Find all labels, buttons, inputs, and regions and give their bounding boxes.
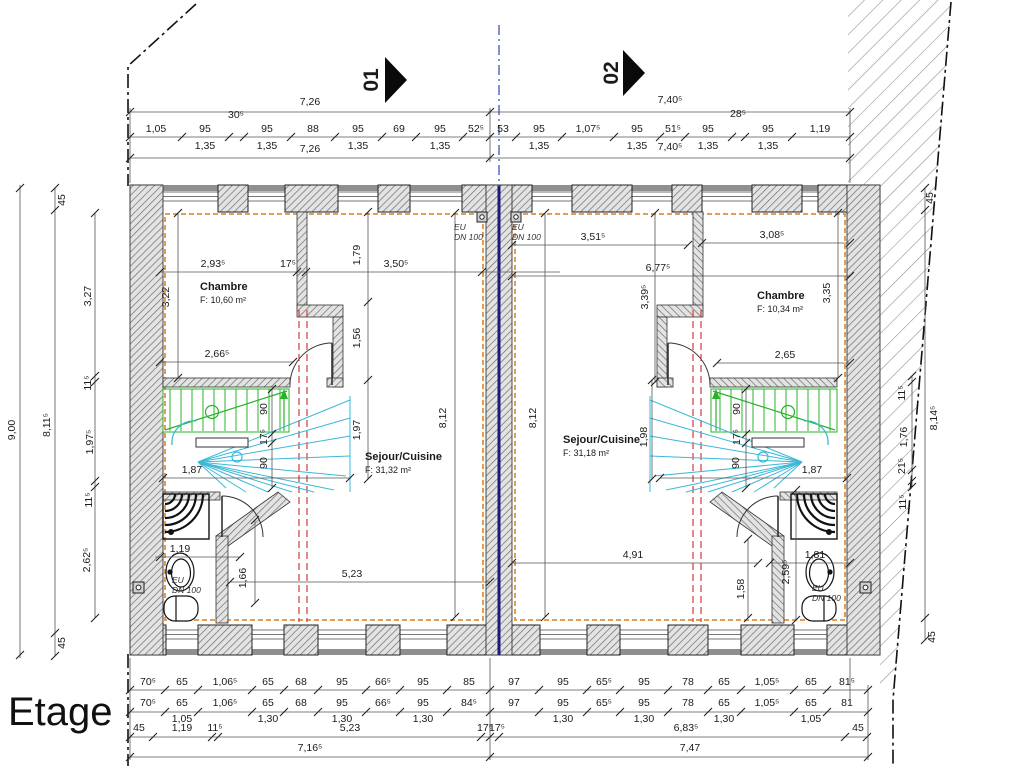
dim-label: 7,26 xyxy=(300,143,320,155)
dim-label: 7,16⁵ xyxy=(298,742,323,754)
dim-label: 1,97⁵ xyxy=(84,430,96,455)
dim-label: 1,56 xyxy=(351,328,363,348)
unit1-arrow-icon xyxy=(385,57,407,103)
dim-label: 3,39⁵ xyxy=(639,285,651,310)
plumbing-label: EU xyxy=(812,583,824,593)
unit2-arrow-icon xyxy=(623,50,645,96)
dim-label: 88 xyxy=(307,123,319,135)
dim-label: 3,27 xyxy=(82,286,94,306)
dim-label: 3,35 xyxy=(821,283,833,303)
dim-label: 1,06⁵ xyxy=(213,697,238,709)
dim-label: 17⁵ xyxy=(731,429,743,445)
wc xyxy=(164,596,198,621)
dim-label: 95 xyxy=(557,676,569,688)
room-name-sejour2: Sejour/Cuisine xyxy=(563,434,640,446)
dim-label: 11⁵ xyxy=(207,722,222,734)
dim-label: 1,79 xyxy=(351,245,363,265)
page-title: Etage xyxy=(8,690,113,735)
dim-label: 11⁵ xyxy=(896,385,908,400)
dim-label: 2,66⁵ xyxy=(205,348,230,360)
dim-label: 95 xyxy=(638,697,650,709)
dim-label: 85 xyxy=(463,676,475,688)
dim-label: 68 xyxy=(295,676,307,688)
dim-label: 11⁵ xyxy=(83,492,95,507)
dim-label: 95 xyxy=(199,123,211,135)
dim-label: 95 xyxy=(638,676,650,688)
plumbing-label: DN 100 xyxy=(512,232,541,242)
dim-label: 2,93⁵ xyxy=(201,258,226,270)
dim-label: 2,65 xyxy=(775,349,795,361)
plumbing-label: EU xyxy=(512,222,524,232)
dim-label: 1,30 xyxy=(258,713,278,725)
dim-label: 1,05 xyxy=(146,123,166,135)
dim-label: 1,30 xyxy=(634,713,654,725)
plumbing-label: DN 100 xyxy=(172,585,201,595)
dim-label: 53 xyxy=(497,123,509,135)
dim-label: 2,62⁵ xyxy=(81,548,93,573)
dim-label: 78 xyxy=(682,676,694,688)
dim-label: 81 xyxy=(841,697,853,709)
floorplan-canvas xyxy=(0,0,1024,768)
dim-label: 68 xyxy=(295,697,307,709)
dim-label: 1,66 xyxy=(237,568,249,588)
dim-label: 1,58 xyxy=(735,579,747,599)
unit1-marker: 01 xyxy=(360,68,384,91)
dim-label: 1,30 xyxy=(413,713,433,725)
dim-label: 66⁵ xyxy=(375,676,391,688)
dim-label: 45 xyxy=(926,631,938,643)
plumbing-label: EU xyxy=(454,222,466,232)
dim-label: 95 xyxy=(336,676,348,688)
dim-label: 95 xyxy=(261,123,273,135)
dim-label: 8,14⁵ xyxy=(928,406,940,431)
dim-label: 7,40⁵ xyxy=(658,141,683,153)
dim-label: 95 xyxy=(762,123,774,135)
dim-label: 3,08⁵ xyxy=(760,229,785,241)
dim-label: 45 xyxy=(924,192,936,204)
dim-label: 95 xyxy=(352,123,364,135)
dim-label: 7,26 xyxy=(300,96,320,108)
plumbing-label: DN 100 xyxy=(812,593,841,603)
dim-label: 6,77⁵ xyxy=(646,262,671,274)
dim-label: 4,91 xyxy=(623,549,643,561)
dim-label: 1,30 xyxy=(714,713,734,725)
dim-label: 11⁵ xyxy=(897,494,909,509)
dim-label: 17⁵ xyxy=(280,258,296,270)
room-name-chambre2: Chambre xyxy=(757,290,805,302)
dim-label: 9,00 xyxy=(6,420,18,440)
dim-label: 5,23 xyxy=(342,568,362,580)
dim-label: 97 xyxy=(508,697,520,709)
plumbing-label: DN 100 xyxy=(454,232,483,242)
dim-label: 69 xyxy=(393,123,405,135)
plumbing-label: EU xyxy=(172,575,184,585)
room-name-chambre1: Chambre xyxy=(200,281,248,293)
dim-label: 45 xyxy=(56,194,68,206)
dim-label: 65 xyxy=(718,676,730,688)
dim-label: 45 xyxy=(56,637,68,649)
dim-label: 51⁵ xyxy=(665,123,681,135)
dim-label: 6,83⁵ xyxy=(674,722,699,734)
dim-label: 65 xyxy=(805,676,817,688)
dim-label: 21⁵ xyxy=(896,458,908,474)
dim-label: 7,47 xyxy=(680,742,700,754)
dim-label: 1,35 xyxy=(430,140,450,152)
dim-label: 3,22 xyxy=(160,287,172,307)
dim-label: 1,05⁵ xyxy=(755,676,780,688)
dim-label: 90 xyxy=(730,457,742,469)
dim-label: 1,30 xyxy=(553,713,573,725)
dim-label: 1,87 xyxy=(182,464,202,476)
dim-label: 78 xyxy=(682,697,694,709)
floorplan-page: Etage 01 02 7,26 7,40⁵ 7,26 7,40⁵ 1,05 9… xyxy=(0,0,1024,768)
dim-label: 11⁵ xyxy=(82,375,94,390)
dim-label: 95 xyxy=(557,697,569,709)
dim-label: 97 xyxy=(508,676,520,688)
dim-label: 90 xyxy=(258,457,270,469)
dim-label: 7,40⁵ xyxy=(658,94,683,106)
dim-label: 65⁵ xyxy=(596,676,612,688)
dim-label: 3,50⁵ xyxy=(384,258,409,270)
dim-label: 65⁵ xyxy=(596,697,612,709)
dim-label: 95 xyxy=(533,123,545,135)
dim-label: 2,59⁵ xyxy=(780,560,792,585)
dim-label: 65 xyxy=(262,676,274,688)
unit2-marker: 02 xyxy=(600,61,624,84)
dim-label: 3,51⁵ xyxy=(581,231,606,243)
dim-label: 1,35 xyxy=(627,140,647,152)
dim-label: 1,81 xyxy=(805,549,825,561)
dim-label: 95 xyxy=(631,123,643,135)
room-name-sejour1: Sejour/Cuisine xyxy=(365,451,442,463)
dim-label: 1,35 xyxy=(195,140,215,152)
dim-label: 1,35 xyxy=(758,140,778,152)
dim-label: 1,97 xyxy=(351,420,363,440)
dim-label: 1,05⁵ xyxy=(755,697,780,709)
dim-label: 45 xyxy=(133,722,145,734)
dim-label: 95 xyxy=(434,123,446,135)
dim-label: 90 xyxy=(731,403,743,415)
dim-label: 1,35 xyxy=(529,140,549,152)
dim-label: 65 xyxy=(176,697,188,709)
dim-label: 95 xyxy=(336,697,348,709)
room-area-sejour1: F: 31,32 m² xyxy=(365,465,411,475)
dim-label: 1,87 xyxy=(802,464,822,476)
dim-label: 8,12 xyxy=(527,408,539,428)
dim-label: 70⁵ xyxy=(140,676,156,688)
dim-label: 66⁵ xyxy=(375,697,391,709)
dim-label: 1,35 xyxy=(348,140,368,152)
room-area-chambre1: F: 10,60 m² xyxy=(200,295,246,305)
dim-label: 1,35 xyxy=(257,140,277,152)
dim-label: 17⁵ xyxy=(258,429,270,445)
room-area-chambre2: F: 10,34 m² xyxy=(757,304,803,314)
dim-label: 70⁵ xyxy=(140,697,156,709)
dim-label: 8,12 xyxy=(437,408,449,428)
dim-label: 52⁵ xyxy=(468,123,484,135)
dim-label: 17⁵ xyxy=(489,722,505,734)
dim-label: 65 xyxy=(262,697,274,709)
dim-label: 65 xyxy=(176,676,188,688)
dim-label: 5,23 xyxy=(340,722,360,734)
dim-label: 1,05 xyxy=(801,713,821,725)
dim-label: 45 xyxy=(852,722,864,734)
dim-label: 90 xyxy=(258,403,270,415)
dim-label: 84⁵ xyxy=(461,697,477,709)
dim-label: 1,98 xyxy=(638,427,650,447)
dim-label: 1,76 xyxy=(898,427,910,447)
dim-label: 65 xyxy=(805,697,817,709)
dim-label: 95 xyxy=(702,123,714,135)
dim-label: 1,07⁵ xyxy=(576,123,601,135)
dim-label: 1,19 xyxy=(170,543,190,555)
stair-landing xyxy=(196,438,248,447)
dim-label: 30⁵ xyxy=(228,109,244,121)
room-area-sejour2: F: 31,18 m² xyxy=(563,448,609,458)
dim-label: 1,19 xyxy=(810,123,830,135)
dim-label: 1,35 xyxy=(698,140,718,152)
dim-label: 95 xyxy=(417,676,429,688)
dim-label: 8,11⁵ xyxy=(41,413,53,437)
dim-label: 1,06⁵ xyxy=(213,676,238,688)
dim-label: 95 xyxy=(417,697,429,709)
dim-label: 28⁵ xyxy=(730,108,746,120)
dim-label: 1,19 xyxy=(172,722,192,734)
dim-label: 81⁵ xyxy=(839,676,855,688)
dim-label: 65 xyxy=(718,697,730,709)
